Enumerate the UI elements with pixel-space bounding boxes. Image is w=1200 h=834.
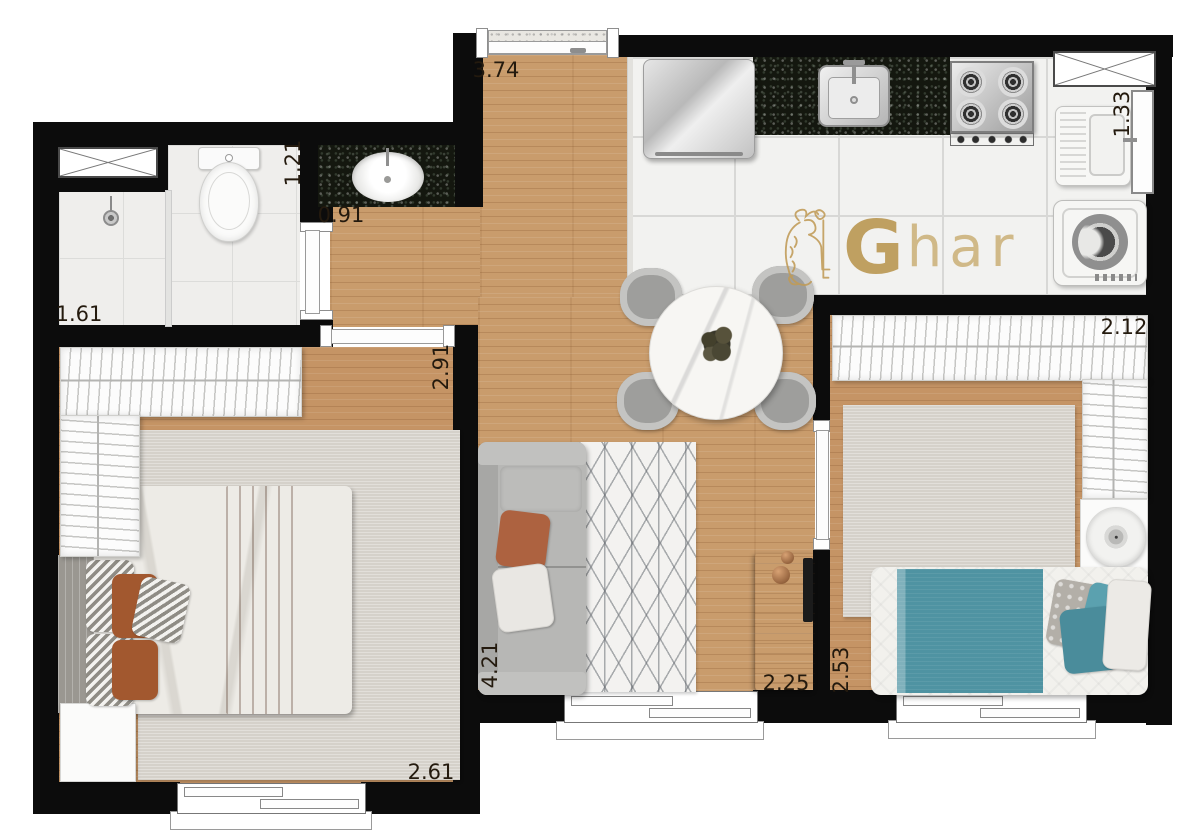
stove-burner-icon bbox=[956, 99, 986, 129]
floor-plan: G har 3.74 1.21 0.91 bbox=[0, 0, 1200, 834]
vanity-drain bbox=[384, 176, 391, 183]
bedroom2-wardrobe-side bbox=[1082, 379, 1148, 499]
window-cross-icon bbox=[60, 149, 156, 176]
kitchen-faucet-handle bbox=[843, 60, 865, 65]
decor-sphere bbox=[781, 551, 794, 564]
wall bbox=[813, 295, 830, 432]
wall bbox=[33, 325, 332, 347]
lion-with-key-icon bbox=[778, 206, 840, 290]
stove-burner-icon bbox=[998, 99, 1028, 129]
bedroom1-wardrobe-side bbox=[60, 415, 140, 557]
dim-entry-hall: 3.74 bbox=[473, 58, 520, 82]
kitchen-window bbox=[1053, 51, 1156, 87]
shower-window bbox=[58, 147, 158, 178]
window-pane bbox=[649, 708, 751, 718]
wall bbox=[33, 122, 483, 145]
refrigerator-handle bbox=[655, 152, 743, 156]
window-pane bbox=[903, 696, 1003, 706]
window-cross-icon bbox=[1055, 53, 1154, 85]
bedroom1-nightstand bbox=[60, 703, 136, 782]
washer-drum-crescent bbox=[1078, 222, 1108, 262]
table-plant bbox=[690, 318, 744, 372]
sofa-armrest bbox=[478, 442, 586, 465]
kitchen-sink-drain bbox=[850, 96, 858, 104]
dim-corridor-l: 2.91 bbox=[429, 344, 453, 391]
stove-burner-icon bbox=[956, 67, 986, 97]
kitchen-floor-divider bbox=[627, 57, 633, 297]
stove-burner-icon bbox=[998, 67, 1028, 97]
bed1-pillow-orange bbox=[112, 640, 158, 700]
entrance-door-jamb bbox=[607, 28, 619, 58]
stove-knob-panel bbox=[950, 133, 1034, 146]
washer-controls bbox=[1095, 274, 1137, 281]
dim-living-w: 2.25 bbox=[763, 671, 810, 695]
window-pane bbox=[571, 696, 673, 706]
laundry-faucet-icon bbox=[1123, 138, 1137, 142]
toilet-seat bbox=[208, 172, 250, 230]
shower-glass-partition bbox=[165, 190, 172, 327]
entrance-door-handle bbox=[570, 48, 586, 53]
laundry-tub-ribs bbox=[1060, 112, 1086, 180]
bed2-pillow-white bbox=[1102, 579, 1152, 672]
sofa-pillow-orange bbox=[495, 509, 551, 571]
kitchen-faucet-icon bbox=[852, 62, 856, 84]
shower-head-icon bbox=[103, 210, 119, 226]
bedroom2-fan bbox=[1086, 507, 1146, 567]
wall bbox=[33, 782, 180, 814]
toilet-flush-button bbox=[225, 154, 233, 162]
brand-initial: G bbox=[843, 211, 904, 285]
bed1-runner-orange bbox=[226, 486, 304, 714]
wall bbox=[813, 546, 830, 693]
shower-arm bbox=[110, 196, 112, 212]
refrigerator bbox=[643, 59, 755, 159]
bedroom2-window bbox=[896, 691, 1087, 723]
fan-center bbox=[1114, 535, 1117, 538]
bedroom1-window bbox=[177, 783, 366, 814]
service-door-panel bbox=[1131, 90, 1154, 194]
window-pane bbox=[980, 708, 1080, 718]
wall bbox=[33, 122, 59, 814]
tv bbox=[803, 558, 813, 622]
dim-corridor-w: 0.91 bbox=[318, 203, 365, 227]
wall bbox=[815, 295, 1148, 315]
window-pane bbox=[184, 787, 283, 797]
sofa-pillow-white bbox=[491, 562, 555, 633]
living-window-sill bbox=[556, 721, 764, 740]
dim-bathroom: 1.21 bbox=[281, 140, 305, 187]
bathroom-door bbox=[305, 230, 320, 314]
dim-bedroom2-l: 2.53 bbox=[829, 647, 853, 694]
fan-hub bbox=[1104, 525, 1127, 548]
living-window bbox=[564, 691, 758, 723]
watermark: G har bbox=[778, 204, 1021, 292]
entrance-door bbox=[488, 41, 607, 54]
dim-bedroom2-w: 2.12 bbox=[1101, 315, 1148, 339]
entrance-door-jamb bbox=[476, 28, 488, 58]
dim-bedroom1-w: 2.61 bbox=[408, 760, 455, 784]
vanity-faucet-icon bbox=[386, 148, 389, 166]
floor-entry-hall bbox=[480, 55, 630, 299]
bedroom1-door bbox=[331, 329, 444, 344]
dim-shower: 1.61 bbox=[56, 302, 103, 326]
window-pane bbox=[260, 799, 359, 809]
sofa-cushion bbox=[500, 466, 582, 512]
dim-living-l: 4.21 bbox=[478, 642, 502, 689]
decor-sphere bbox=[772, 566, 790, 584]
bedroom2-door bbox=[816, 430, 829, 540]
dim-service: 1.33 bbox=[1110, 91, 1134, 138]
bed2-blanket-teal bbox=[897, 569, 1043, 693]
bedroom1-wardrobe bbox=[60, 347, 302, 417]
brand-rest: har bbox=[907, 220, 1021, 276]
